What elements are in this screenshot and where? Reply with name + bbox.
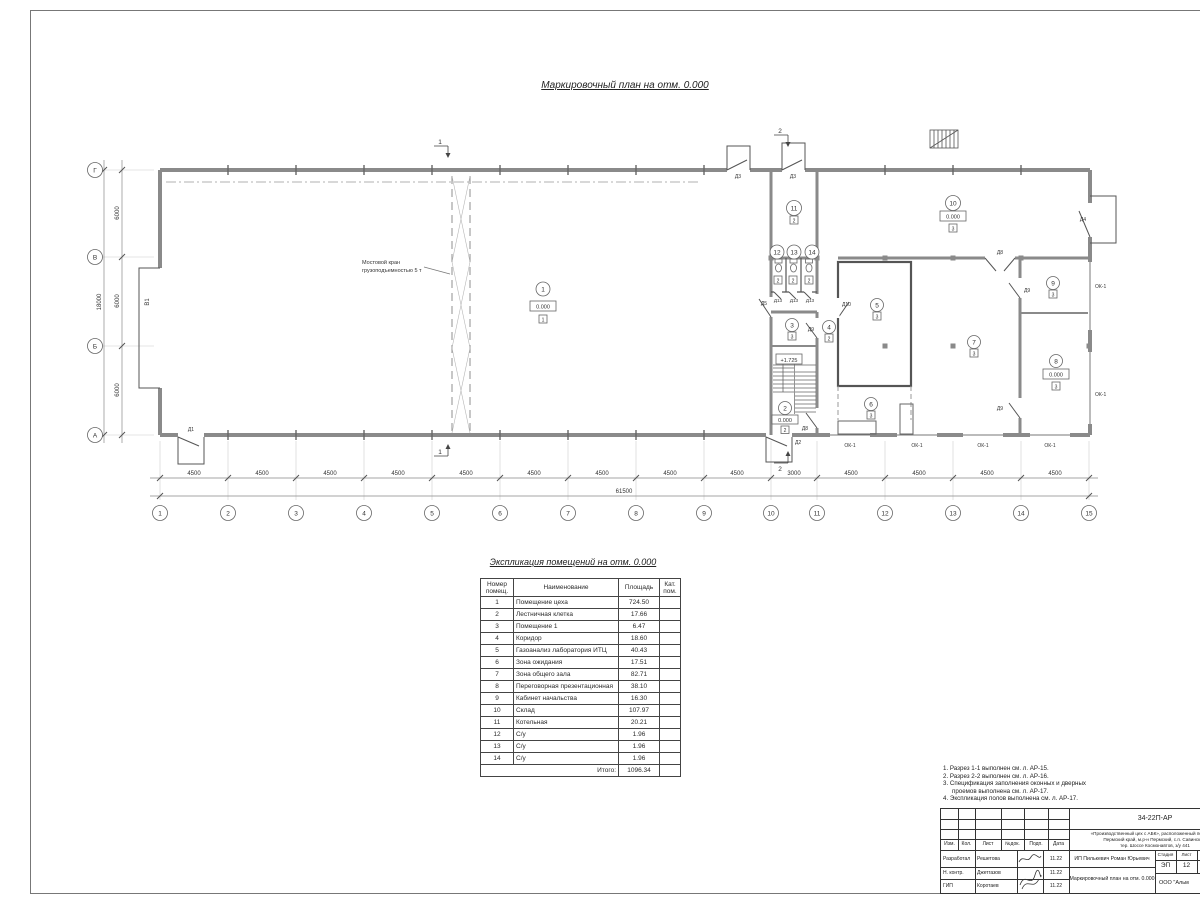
- stamp-date: 11.22: [1043, 870, 1069, 876]
- room-num: 12: [773, 250, 781, 257]
- col-header-num: Номер помещ.: [481, 579, 514, 597]
- crane-note-line2: грузоподъемностью 5 т: [362, 268, 422, 274]
- dim-bottom: 4500: [663, 471, 677, 477]
- wc-fixtures: [775, 259, 813, 272]
- col-header-area: Площадь: [619, 579, 660, 597]
- grid-col: 2: [226, 511, 230, 518]
- stair-landing-elev: +1.725: [781, 358, 798, 364]
- sheet-subtitle: Маркировочный план на отм. 0.000: [1069, 876, 1155, 882]
- room-num: 5: [875, 303, 879, 310]
- room-num: 7: [972, 340, 976, 347]
- window-label: ОК-1: [844, 443, 855, 449]
- stamp-name: Коротаев: [977, 883, 1017, 889]
- grid-row: А: [93, 433, 98, 440]
- note-line: проемов выполнена см. л. АР-17.: [943, 788, 1193, 796]
- stamp-date: 11.22: [1043, 856, 1069, 862]
- grid-extension-lines: [88, 170, 1089, 500]
- door-label-d13: Д13: [806, 298, 815, 303]
- grid-col: 15: [1085, 511, 1093, 518]
- room-cat: 2: [808, 278, 811, 284]
- room-num: 11: [791, 206, 798, 213]
- room-num: 6: [869, 402, 873, 409]
- dim-bottom: 4500: [844, 471, 858, 477]
- room-cat: 3: [952, 226, 955, 232]
- total-value: 1096.34: [619, 765, 660, 777]
- room-cat: 2: [792, 278, 795, 284]
- table-row: 7Зона общего зала82.71: [481, 669, 681, 681]
- table-row: 14С/у1.96: [481, 753, 681, 765]
- room-num: 14: [808, 250, 816, 257]
- door-label-d9: Д9: [997, 406, 1003, 412]
- table-row: 8Переговорная презентационная38.10: [481, 681, 681, 693]
- room-cat: 3: [876, 314, 879, 320]
- client-name: ИП Пилькевич Роман Юрьевич: [1069, 856, 1155, 862]
- grid-col: 9: [702, 511, 706, 518]
- table-total-row: Итого: 1096.34: [481, 765, 681, 777]
- crane-note-line1: Мостовой кран: [362, 259, 400, 266]
- grid-col: 4: [362, 511, 366, 518]
- door-label-d5: Д5: [761, 301, 767, 307]
- door-label-d13: Д13: [790, 298, 799, 303]
- notes-block: 1. Разрез 1-1 выполнен см. л. АР-15. 2. …: [943, 765, 1193, 803]
- room-labels: 1 2 3 4 5 6 7 8 9 10 11 12 13 14 0.000 0…: [530, 196, 1069, 435]
- room-cat: 3: [791, 334, 794, 340]
- dim-bottom: 4500: [255, 471, 269, 477]
- note-line: 3. Спецификация заполнения оконных и две…: [943, 780, 1193, 788]
- room-num: 2: [783, 406, 787, 413]
- table-row: 6Зона ожидания17.51: [481, 657, 681, 669]
- room-elev: 0.000: [1049, 373, 1063, 379]
- stamp-col-kol: Кол.: [958, 841, 975, 847]
- door-label-d3: Д3: [790, 174, 796, 180]
- stamp-col-data: Дата: [1048, 841, 1069, 847]
- door-label-d9: Д9: [808, 327, 814, 333]
- dim-bottom: 4500: [459, 471, 473, 477]
- room-num: 9: [1051, 281, 1055, 288]
- table-row: 9Кабинет начальства16.30: [481, 693, 681, 705]
- room-cat: 3: [973, 351, 976, 357]
- grid-col: 11: [814, 511, 821, 518]
- stamp-date: 11.22: [1043, 883, 1069, 889]
- grid-row: Г: [93, 168, 97, 175]
- door-label-d1: Д1: [188, 427, 194, 433]
- dim-total-left: 18000: [97, 293, 103, 310]
- signature: [1017, 852, 1043, 866]
- room-schedule-table: Номер помещ. Наименование Площадь Кат. п…: [480, 578, 681, 777]
- object-address-line1: «Производственный цех с АБК», расположен…: [1069, 831, 1200, 836]
- stage-label: Стадия: [1155, 852, 1176, 857]
- room-cat: 3: [1055, 384, 1058, 390]
- note-line: 2. Разрез 2-2 выполнен см. л. АР-16.: [943, 773, 1193, 781]
- sheet-label: Лист: [1176, 852, 1197, 857]
- room-cat: 3: [1052, 292, 1055, 298]
- room-num: 8: [1054, 359, 1058, 366]
- table-header-row: Номер помещ. Наименование Площадь Кат. п…: [481, 579, 681, 597]
- room-num: 10: [949, 201, 957, 208]
- dim-bottom: 4500: [187, 471, 201, 477]
- grid-col: 3: [294, 511, 298, 518]
- door-label-d8: Д8: [802, 426, 808, 432]
- stamp-name: Джетгазов: [977, 870, 1017, 876]
- stamp-col-ndok: №док.: [1001, 841, 1024, 847]
- org-name: ООО "Альм: [1159, 880, 1200, 886]
- stamp-role: Разработал: [943, 856, 975, 862]
- room-elev: 0.000: [778, 418, 792, 424]
- room-cat: 2: [828, 336, 831, 342]
- room-cat: 2: [777, 278, 780, 284]
- grid-col: 13: [949, 511, 957, 518]
- door-label-d2: Д2: [795, 440, 801, 446]
- table-row: 10Склад107.97: [481, 705, 681, 717]
- stamp-name: Решетова: [977, 856, 1017, 862]
- room-num: 4: [827, 325, 831, 332]
- table-title: Экспликация помещений на отм. 0.000: [448, 557, 698, 567]
- room-cat: 3: [870, 413, 873, 419]
- sheet-value: 12: [1176, 862, 1197, 869]
- section-mark-1: 1: [438, 139, 442, 146]
- room-cat: 1: [542, 317, 545, 323]
- dim-bottom: 4500: [595, 471, 609, 477]
- dim-bottom: 4500: [1048, 471, 1062, 477]
- object-address-line3: тер. Шоссе Космонавтов, з/у 441: [1069, 843, 1200, 848]
- grid-col: 14: [1017, 511, 1025, 518]
- dim-bottom: 4500: [730, 471, 744, 477]
- exterior-stair: [930, 130, 958, 148]
- doors-and-porches: [139, 143, 1116, 464]
- crane: Мостовой кран грузоподъемностью 5 т: [166, 176, 700, 433]
- signature: [1017, 867, 1043, 893]
- section-mark-2: 2: [778, 466, 782, 473]
- doc-number: 34-22П-АР: [1069, 815, 1200, 822]
- dim-left: 6000: [115, 206, 121, 220]
- table-row: 5Газоанализ лаборатория ИТЦ40.43: [481, 645, 681, 657]
- door-label-d4: Д4: [1080, 217, 1086, 223]
- gate-label: В1: [145, 298, 151, 306]
- stamp-col-list: Лист: [975, 841, 1001, 847]
- room-elev: 0.000: [946, 215, 960, 221]
- grid-col: 1: [158, 511, 162, 518]
- grid-col: 5: [430, 511, 434, 518]
- table-row: 2Лестничная клетка17.66: [481, 609, 681, 621]
- grid-col: 6: [498, 511, 502, 518]
- room-num: 1: [541, 287, 545, 294]
- room-cat: 2: [793, 218, 796, 224]
- stamp-role: Н. контр.: [943, 870, 975, 876]
- col-header-name: Наименование: [514, 579, 619, 597]
- room-elev: 0.000: [536, 305, 550, 311]
- door-label-d3: Д3: [735, 174, 741, 180]
- grid-row: В: [93, 255, 97, 262]
- dim-bottom: 4500: [912, 471, 926, 477]
- door-label-d10: Д10: [842, 302, 851, 308]
- dim-bottom: 3000: [787, 471, 801, 477]
- drawing-sheet: { "sheet": { "plan_title": "Маркировочны…: [0, 0, 1200, 900]
- dim-bottom: 4500: [323, 471, 337, 477]
- total-label: Итого:: [481, 765, 619, 777]
- dim-left: 6000: [115, 294, 121, 308]
- grid-col: 8: [634, 511, 638, 518]
- window-label: ОК-1: [1044, 443, 1055, 449]
- window-label: ОК-1: [1095, 392, 1106, 398]
- dim-bottom: 4500: [980, 471, 994, 477]
- room-num: 13: [790, 250, 798, 257]
- stamp-col-podp: Подп.: [1024, 841, 1048, 847]
- room-cat: 2: [784, 428, 787, 434]
- section-mark-1: 1: [438, 449, 442, 456]
- table-row: 4Коридор18.60: [481, 633, 681, 645]
- window-label: ОК-1: [977, 443, 988, 449]
- section-mark-2: 2: [778, 128, 782, 135]
- door-label-d13: Д13: [774, 298, 783, 303]
- object-address-line2: Пермский край, м.р-н Пермский, с.п. Сави…: [1069, 837, 1200, 842]
- dim-bottom: 4500: [527, 471, 541, 477]
- window-label: ОК-1: [1095, 284, 1106, 290]
- dim-bottom: 4500: [391, 471, 405, 477]
- col-header-cat: Кат. пом.: [660, 579, 681, 597]
- grid-col: 12: [881, 511, 889, 518]
- window-label: ОК-1: [911, 443, 922, 449]
- table-row: 3Помещение 16.47: [481, 621, 681, 633]
- title-block: Изм. Кол. Лист №док. Подп. Дата Разработ…: [940, 808, 1200, 894]
- grid-col: 7: [566, 511, 570, 518]
- grid-row: Б: [93, 344, 97, 351]
- dim-total-bottom: 61500: [616, 489, 633, 495]
- room-num: 3: [790, 323, 794, 330]
- lab-room: [838, 262, 911, 420]
- grid-col: 10: [767, 511, 775, 518]
- stage-value: ЭП: [1155, 862, 1176, 869]
- door-label-d9: Д9: [1024, 288, 1030, 294]
- floor-plan: 4500 4500 4500 4500 4500 4500 4500 4500 …: [0, 0, 1200, 545]
- note-line: 4. Экспликация полов выполнена см. л. АР…: [943, 795, 1193, 803]
- door-label-d8: Д8: [997, 250, 1003, 256]
- dim-left: 6000: [115, 383, 121, 397]
- note-line: 1. Разрез 1-1 выполнен см. л. АР-15.: [943, 765, 1193, 773]
- table-row: 11Котельная20.21: [481, 717, 681, 729]
- stamp-role: ГИП: [943, 883, 975, 889]
- stamp-col-izm: Изм.: [941, 841, 958, 847]
- table-row: 13С/у1.96: [481, 741, 681, 753]
- table-row: 1Помещение цеха724.50: [481, 597, 681, 609]
- table-row: 12С/у1.96: [481, 729, 681, 741]
